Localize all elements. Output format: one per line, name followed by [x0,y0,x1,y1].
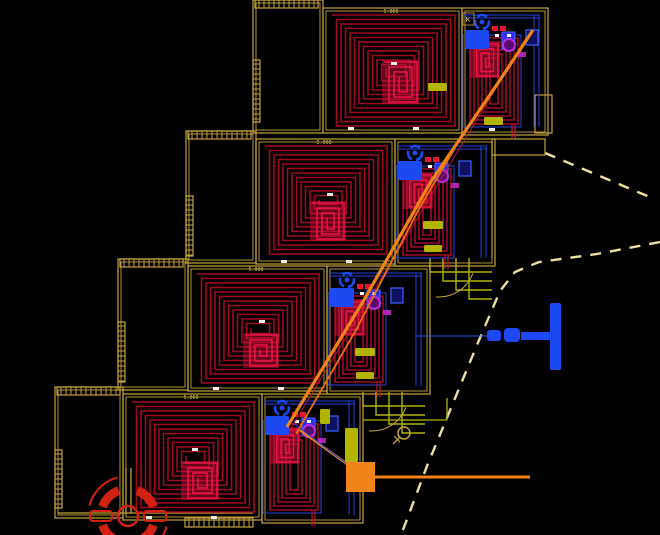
unit-1-dim-tick [413,127,419,130]
unit-3-dim-tick [259,320,265,323]
tick [495,34,499,37]
background [0,0,660,535]
red-fitting [425,157,431,162]
red-fitting [433,157,439,162]
thermostat-icon [503,39,515,51]
unit-1-dim-label: 5.000 [383,9,398,15]
unit-2-dim-tick [327,193,333,196]
unit-1-label-box [484,117,503,125]
unit-1-label-box [428,83,447,91]
unit-3-label-box [356,372,374,379]
magenta-fitting [451,183,459,188]
manifold-block [465,30,489,49]
supply-junction-box [346,462,375,492]
red-fitting [492,26,498,31]
unit-3-dim-label: 5.000 [248,267,263,273]
valve-icon [487,330,501,341]
cad-viewport[interactable]: 5.000K5.0005.0005.000 [0,0,660,535]
unit-2-dim-tick [281,260,287,263]
unit-2-dim-label: 5.000 [316,140,331,146]
unit-1-dim-tick [489,128,495,131]
cad-drawing-area: 5.000K5.0005.0005.000 [0,0,660,535]
unit-4-coil-core [181,461,219,500]
unit-1-dim-tick [348,127,354,130]
magenta-fitting [318,438,326,443]
unit-1-dim-tick [391,62,397,65]
magenta-fitting [383,310,391,315]
valve-block [391,288,403,303]
tee-bar [550,303,561,370]
red-fitting [357,284,363,289]
pump-center [280,406,285,411]
manifold-block [265,416,289,435]
unit-3-dim-tick [213,387,219,390]
unit-4-label-box [345,428,358,462]
unit-3-dim-tick [278,387,284,390]
unit-3-coil-core [243,333,279,368]
unit-4-dim-tick [192,448,198,451]
unit-2-label-box [423,221,443,229]
red-fitting [500,26,506,31]
pump-center [413,151,418,156]
tick [507,34,511,37]
unit-4-dim-tick [146,516,152,519]
unit-4-dim-tick [211,516,217,519]
valve-block [459,161,471,176]
tick [360,292,364,295]
pump-center [345,278,350,283]
valve-icon [504,328,520,342]
unit-4-label-box [320,409,330,424]
tee-stem [521,332,551,340]
manifold-block [398,161,422,180]
unit-2-dim-tick [346,260,352,263]
unit-4-dim-label: 5.000 [183,395,198,401]
pump-center [480,20,485,25]
tick [307,420,311,423]
unit-3-label-box [355,348,375,356]
unit-2-label-box [424,245,442,252]
manifold-block [330,288,354,307]
tick [428,165,432,168]
unit-2-coil-core [310,201,346,241]
